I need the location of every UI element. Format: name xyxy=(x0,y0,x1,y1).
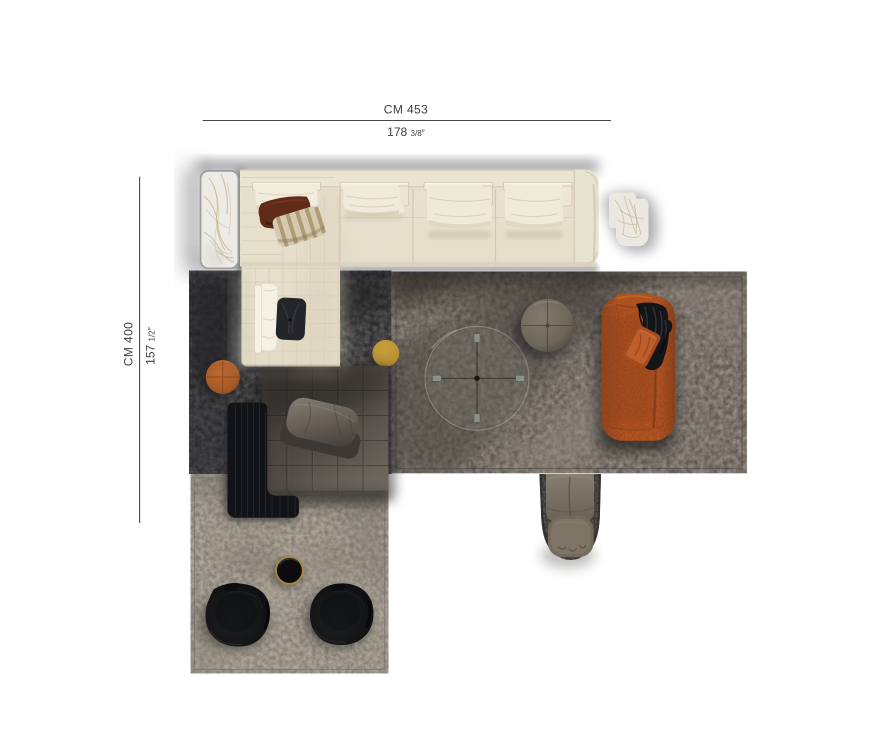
svg-text:CM 400: CM 400 xyxy=(122,322,136,366)
svg-text:CM 453: CM 453 xyxy=(384,103,428,117)
